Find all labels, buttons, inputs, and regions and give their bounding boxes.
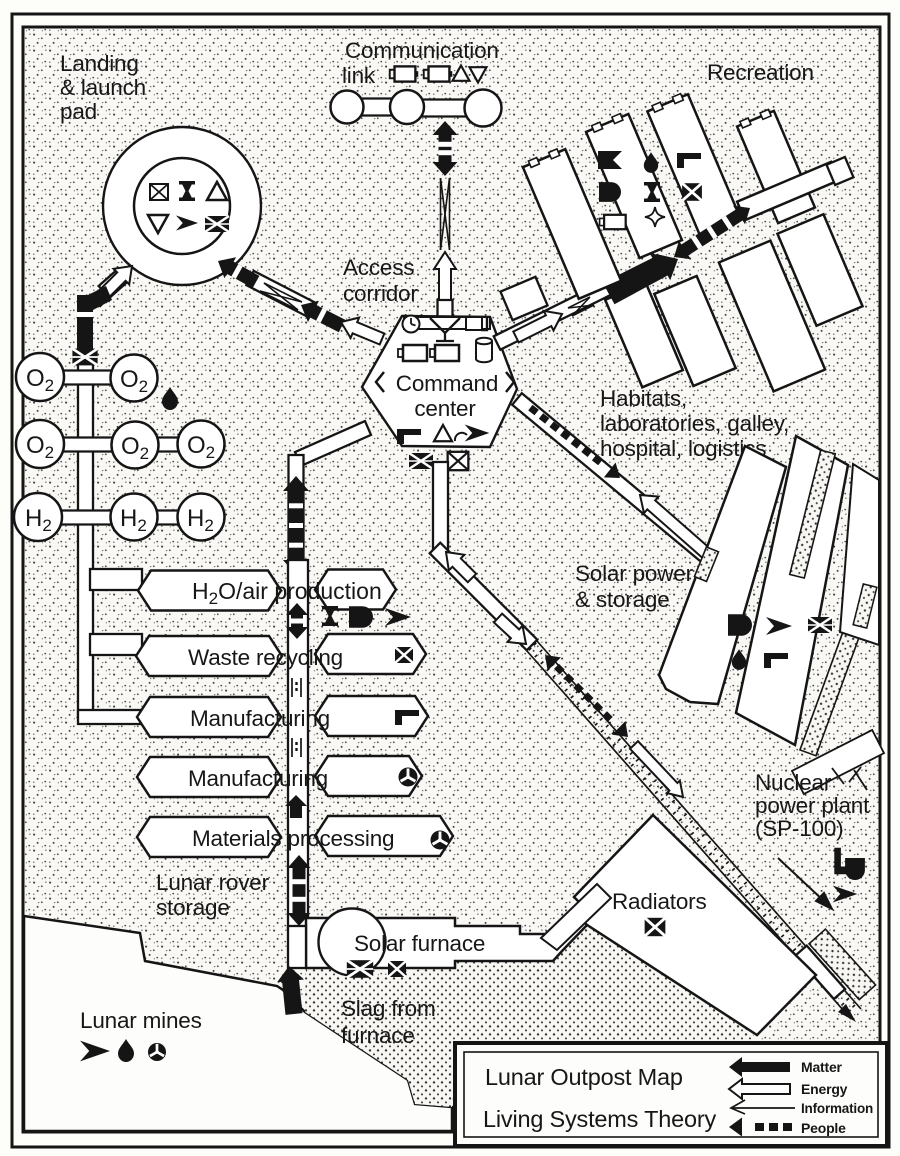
svg-text:People: People — [801, 1120, 846, 1136]
svg-text:Landing: Landing — [60, 51, 139, 76]
svg-text:Nuclear: Nuclear — [755, 770, 832, 795]
svg-text:Command: Command — [396, 371, 498, 396]
svg-text:Manufacturing: Manufacturing — [188, 766, 328, 791]
svg-text:Energy: Energy — [801, 1081, 848, 1097]
svg-text:Communication: Communication — [345, 38, 499, 63]
svg-text:Manufacturing: Manufacturing — [190, 706, 330, 731]
svg-text:storage: storage — [156, 895, 230, 920]
svg-text:Radiators: Radiators — [612, 889, 707, 914]
svg-text:Access: Access — [343, 255, 414, 280]
svg-text:H2​O/air production: H2​O/air production — [192, 578, 382, 608]
svg-text:furnace: furnace — [341, 1023, 415, 1048]
svg-text:Information: Information — [801, 1101, 873, 1116]
svg-text:Lunar mines: Lunar mines — [80, 1008, 202, 1033]
svg-text:laboratories, galley,: laboratories, galley, — [600, 411, 789, 436]
svg-text:pad: pad — [60, 99, 97, 124]
svg-text:& storage: & storage — [575, 587, 670, 612]
svg-text:Living Systems Theory: Living Systems Theory — [483, 1106, 717, 1132]
svg-text:Recreation: Recreation — [707, 60, 814, 85]
svg-text:Materials processing: Materials processing — [192, 826, 394, 851]
svg-text:center: center — [414, 396, 476, 421]
svg-text:& launch: & launch — [60, 75, 146, 100]
svg-text:Lunar Outpost Map: Lunar Outpost Map — [485, 1064, 683, 1090]
svg-text:link: link — [342, 63, 376, 88]
svg-text:corridor: corridor — [343, 281, 418, 306]
svg-text:(SP-100): (SP-100) — [755, 816, 843, 841]
svg-text:Solar furnace: Solar furnace — [354, 931, 485, 956]
svg-text:Slag from: Slag from — [341, 996, 435, 1021]
svg-text:Matter: Matter — [801, 1059, 843, 1075]
svg-text:power plant: power plant — [755, 793, 870, 818]
svg-text:Lunar rover: Lunar rover — [156, 870, 270, 895]
svg-text:Waste recycling: Waste recycling — [188, 645, 343, 670]
svg-text:Habitats,: Habitats, — [600, 386, 687, 411]
svg-text:Solar power: Solar power — [575, 561, 694, 586]
